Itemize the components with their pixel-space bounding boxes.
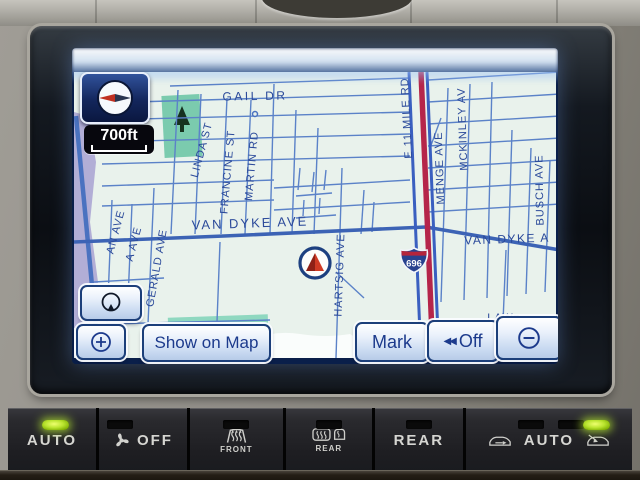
- mark-label: Mark: [372, 332, 412, 353]
- climate-control-panel: AUTO OFF: [8, 408, 632, 470]
- voice-off-button[interactable]: ◀◀ Off: [427, 320, 499, 362]
- rear-climate-button[interactable]: REAR: [375, 408, 463, 471]
- vehicle-position-icon: [300, 248, 330, 278]
- rear-defrost-button[interactable]: REAR: [286, 408, 372, 471]
- navigation-screen[interactable]: 696 GAIL DR E 11 MILE RD MENGE AVE MCKIN…: [72, 48, 558, 364]
- scale-bar: [91, 145, 147, 152]
- indicator-slot: [518, 420, 544, 429]
- shield-number: 696: [406, 259, 422, 270]
- map-orientation-button[interactable]: [80, 285, 142, 321]
- auto-label: AUTO: [27, 432, 77, 449]
- map-scale-indicator: 700ft: [84, 125, 154, 154]
- street-label: BUSCH AVE: [533, 154, 546, 225]
- street-label: VAN DYKE A: [464, 231, 550, 248]
- heading-up-icon: [99, 291, 123, 315]
- dash-vent-shape: [262, 0, 412, 18]
- dash-trim-bottom: [0, 470, 640, 480]
- indicator-slot: [406, 420, 432, 429]
- street-label: MENGE AVE: [433, 131, 448, 204]
- zoom-in-button[interactable]: [76, 324, 126, 360]
- compass-icon: [95, 78, 135, 118]
- indicator-slot: [316, 420, 342, 429]
- climate-auto-button[interactable]: AUTO: [8, 408, 96, 471]
- street-label: GAIL DR: [222, 88, 287, 103]
- mark-button[interactable]: Mark: [355, 322, 429, 362]
- show-on-map-button[interactable]: Show on Map: [142, 324, 271, 362]
- show-on-map-label: Show on Map: [155, 333, 259, 353]
- recirculation-icon: [488, 434, 512, 447]
- front-defrost-button[interactable]: FRONT: [190, 408, 283, 471]
- dash-trim-top: [0, 0, 640, 26]
- trim-seam: [410, 0, 412, 26]
- fan-icon: [113, 432, 130, 449]
- trim-seam: [556, 0, 558, 26]
- fan-off-button[interactable]: OFF: [99, 408, 187, 471]
- off-label: Off: [459, 331, 483, 352]
- interstate-shield-icon: 696: [401, 248, 428, 273]
- front-defrost-icon: [225, 427, 248, 444]
- rear-label: REAR: [315, 444, 342, 453]
- indicator-slot: [107, 420, 133, 429]
- trim-seam: [255, 0, 257, 26]
- compass-button[interactable]: [80, 72, 150, 124]
- trim-seam: [95, 0, 97, 26]
- minus-circle-icon: [517, 326, 541, 350]
- car-dashboard: { "nav": { "scale_label": "700ft", "butt…: [0, 0, 640, 480]
- indicator-led-on: [42, 420, 69, 430]
- rear-label: REAR: [394, 432, 445, 449]
- indicator-slot: [558, 420, 584, 429]
- double-left-arrow-icon: ◀◀: [443, 336, 454, 347]
- auto-label: AUTO: [524, 432, 574, 449]
- scale-label: 700ft: [100, 128, 137, 144]
- off-label: OFF: [137, 432, 173, 449]
- air-intake-auto-button[interactable]: AUTO: [466, 408, 632, 471]
- indicator-led-on: [583, 420, 610, 430]
- mirror-defrost-icon: [334, 429, 344, 439]
- indicator-slot: [223, 420, 249, 429]
- rear-defrost-icon: [312, 427, 346, 443]
- fresh-air-icon: [586, 434, 610, 447]
- front-label: FRONT: [220, 445, 253, 454]
- zoom-out-button[interactable]: [496, 316, 558, 360]
- plus-circle-icon: [90, 331, 112, 353]
